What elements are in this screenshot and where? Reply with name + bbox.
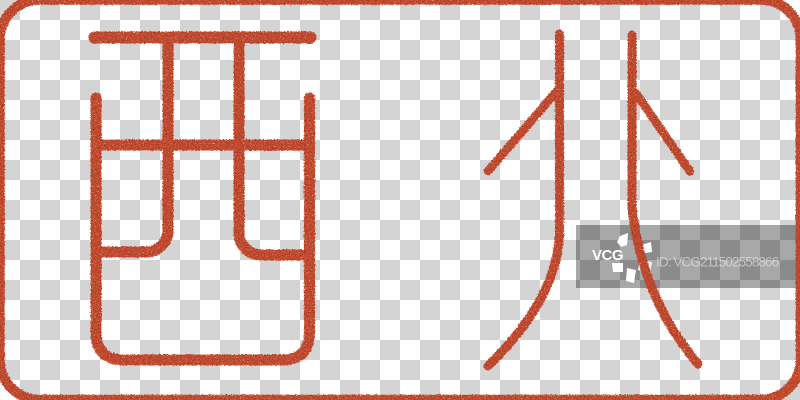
svg-text:ID: VCG211502558866: ID: VCG211502558866 [656,255,779,270]
svg-text:VCG: VCG [592,247,623,264]
